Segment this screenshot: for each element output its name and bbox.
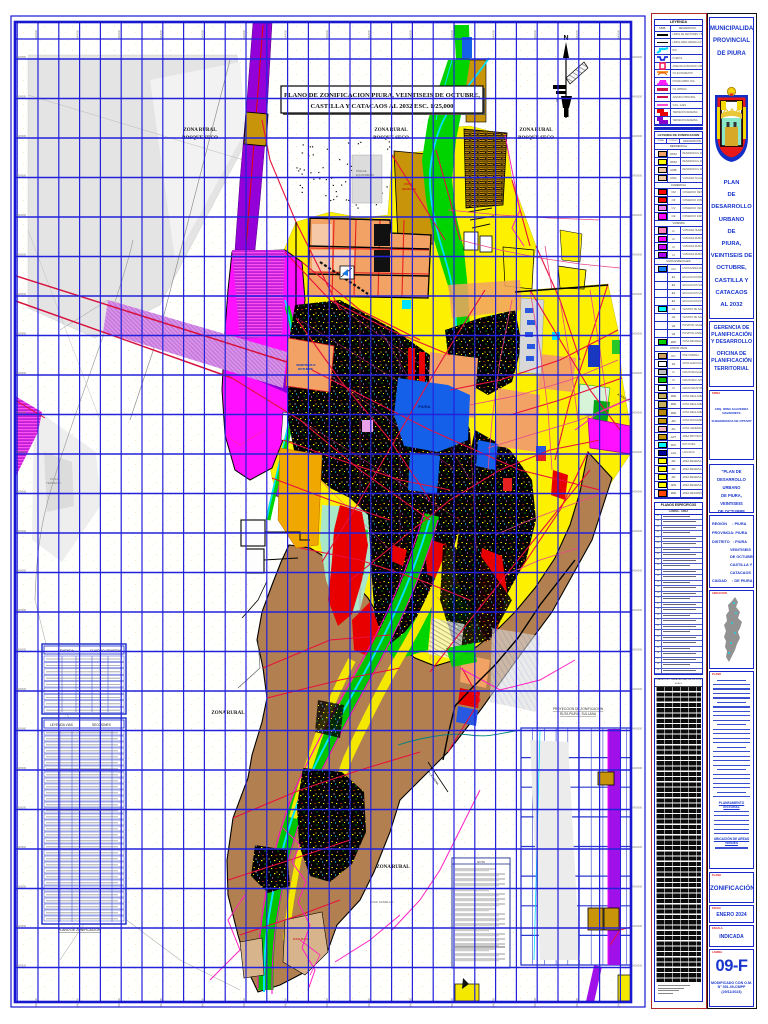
svg-text:542000: 542000 — [408, 29, 412, 38]
svg-text:9426000: 9426000 — [632, 213, 643, 217]
svg-text:ZONA DE: ZONA DE — [356, 170, 367, 173]
svg-text:9426000: 9426000 — [632, 924, 643, 928]
svg-text:9426000: 9426000 — [632, 687, 643, 691]
svg-text:9426000: 9426000 — [16, 964, 27, 968]
svg-text:542000: 542000 — [34, 29, 38, 38]
svg-text:NOTA: NOTA — [477, 860, 485, 864]
svg-text:LEYENDA VIAS: LEYENDA VIAS — [50, 723, 73, 727]
svg-text:9426000: 9426000 — [16, 766, 27, 770]
svg-text:ZONA RURAL: ZONA RURAL — [183, 128, 217, 133]
svg-text:9426000: 9426000 — [632, 332, 643, 336]
svg-text:9426000: 9426000 — [16, 292, 27, 296]
svg-text:9426000: 9426000 — [16, 174, 27, 178]
svg-text:542000: 542000 — [325, 29, 329, 38]
svg-text:OCTUBRE: OCTUBRE — [298, 367, 313, 371]
svg-text:9426000: 9426000 — [632, 490, 643, 494]
svg-text:9426000: 9426000 — [16, 134, 27, 138]
svg-text:9426000: 9426000 — [632, 806, 643, 810]
svg-text:542000: 542000 — [533, 29, 537, 38]
svg-text:9426000: 9426000 — [632, 371, 643, 375]
svg-text:9426000: 9426000 — [632, 292, 643, 296]
svg-text:542000: 542000 — [492, 29, 496, 38]
svg-text:9426000: 9426000 — [632, 845, 643, 849]
svg-text:542000: 542000 — [367, 29, 371, 38]
svg-text:542000: 542000 — [200, 29, 204, 38]
svg-text:9426000: 9426000 — [632, 885, 643, 889]
svg-text:9426000: 9426000 — [632, 727, 643, 731]
svg-text:542000: 542000 — [284, 29, 288, 38]
svg-text:ZONA RURAL: ZONA RURAL — [293, 937, 310, 941]
svg-text:9426000: 9426000 — [16, 648, 27, 652]
svg-text:9426000: 9426000 — [632, 174, 643, 178]
svg-text:9426000: 9426000 — [16, 95, 27, 99]
svg-text:542000: 542000 — [117, 29, 121, 38]
svg-text:9426000: 9426000 — [16, 332, 27, 336]
svg-text:9426000: 9426000 — [632, 95, 643, 99]
svg-text:9426000: 9426000 — [16, 608, 27, 612]
svg-text:9426000: 9426000 — [632, 569, 643, 573]
svg-text:9426000: 9426000 — [632, 529, 643, 533]
svg-text:542000: 542000 — [575, 29, 579, 38]
svg-text:9426000: 9426000 — [632, 134, 643, 138]
svg-text:ZONA RURAL: ZONA RURAL — [376, 865, 410, 870]
svg-text:9426000: 9426000 — [632, 253, 643, 257]
svg-text:9426000: 9426000 — [16, 411, 27, 415]
svg-text:FUGO CANISLAO: FUGO CANISLAO — [370, 900, 394, 904]
svg-text:9426000: 9426000 — [16, 213, 27, 217]
svg-text:9426000: 9426000 — [16, 490, 27, 494]
svg-text:PIURA: PIURA — [418, 404, 431, 409]
svg-text:9426000: 9426000 — [16, 450, 27, 454]
svg-text:9426000: 9426000 — [16, 529, 27, 533]
svg-text:9426000: 9426000 — [16, 569, 27, 573]
svg-text:9426000: 9426000 — [632, 55, 643, 59]
svg-text:9426000: 9426000 — [16, 55, 27, 59]
svg-text:9426000: 9426000 — [632, 766, 643, 770]
svg-text:542000: 542000 — [159, 29, 163, 38]
svg-text:542000: 542000 — [242, 29, 246, 38]
svg-text:ZONA RURAL: ZONA RURAL — [211, 711, 245, 716]
svg-text:9426000: 9426000 — [16, 845, 27, 849]
svg-text:ZONA RURAL: ZONA RURAL — [519, 128, 553, 133]
svg-text:9426000: 9426000 — [16, 253, 27, 257]
svg-text:9426000: 9426000 — [632, 964, 643, 968]
svg-text:9426000: 9426000 — [632, 648, 643, 652]
svg-text:EQUIPAMIENTO: EQUIPAMIENTO — [356, 174, 374, 177]
svg-text:542000: 542000 — [616, 29, 620, 38]
svg-text:9426000: 9426000 — [16, 371, 27, 375]
svg-text:542000: 542000 — [450, 29, 454, 38]
svg-text:9426000: 9426000 — [16, 727, 27, 731]
svg-text:9426000: 9426000 — [632, 450, 643, 454]
svg-text:9426000: 9426000 — [632, 411, 643, 415]
svg-text:542000: 542000 — [76, 29, 80, 38]
svg-text:9426000: 9426000 — [16, 924, 27, 928]
svg-text:9426000: 9426000 — [632, 608, 643, 612]
svg-text:9426000: 9426000 — [16, 806, 27, 810]
svg-text:9426000: 9426000 — [16, 885, 27, 889]
svg-text:SECCIONES: SECCIONES — [92, 723, 111, 727]
svg-text:9426000: 9426000 — [16, 687, 27, 691]
